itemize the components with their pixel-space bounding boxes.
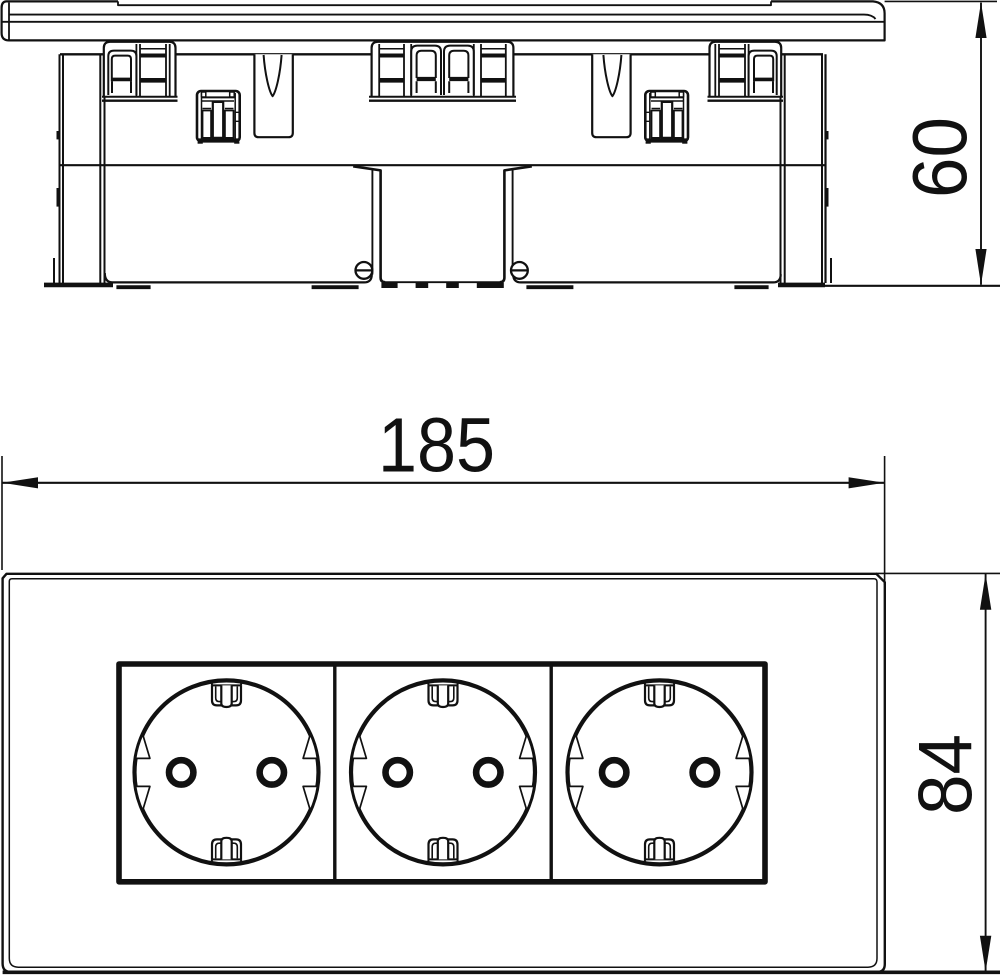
svg-text:185: 185 [378,403,495,489]
svg-text:60: 60 [898,117,984,198]
svg-text:84: 84 [904,734,989,815]
